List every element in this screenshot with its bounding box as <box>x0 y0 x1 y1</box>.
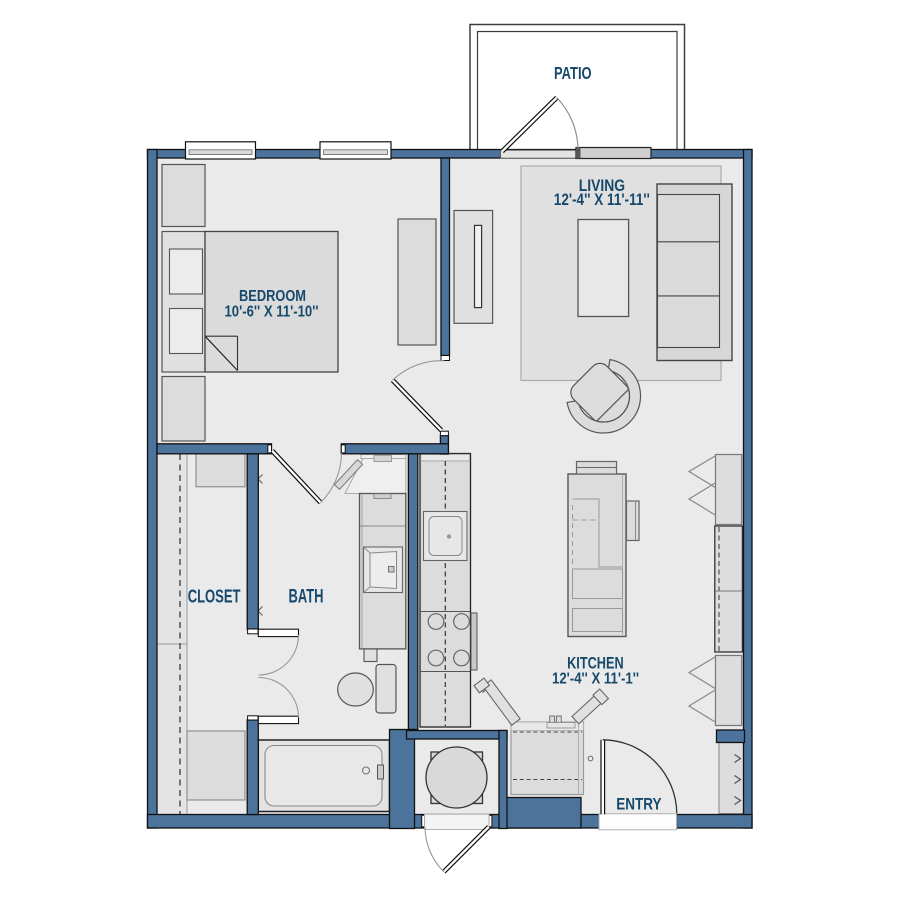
svg-text:BEDROOM: BEDROOM <box>239 288 306 305</box>
svg-text:BATH: BATH <box>289 587 324 608</box>
svg-text:CLOSET: CLOSET <box>188 586 241 607</box>
svg-text:ENTRY: ENTRY <box>616 795 662 814</box>
svg-text:12'-4'' X 11'-1'': 12'-4'' X 11'-1'' <box>552 671 639 688</box>
svg-text:12'-4'' X 11'-11'': 12'-4'' X 11'-11'' <box>554 190 650 209</box>
svg-text:10'-6'' X 11'-10'': 10'-6'' X 11'-10'' <box>225 304 319 321</box>
svg-text:PATIO: PATIO <box>554 63 592 83</box>
